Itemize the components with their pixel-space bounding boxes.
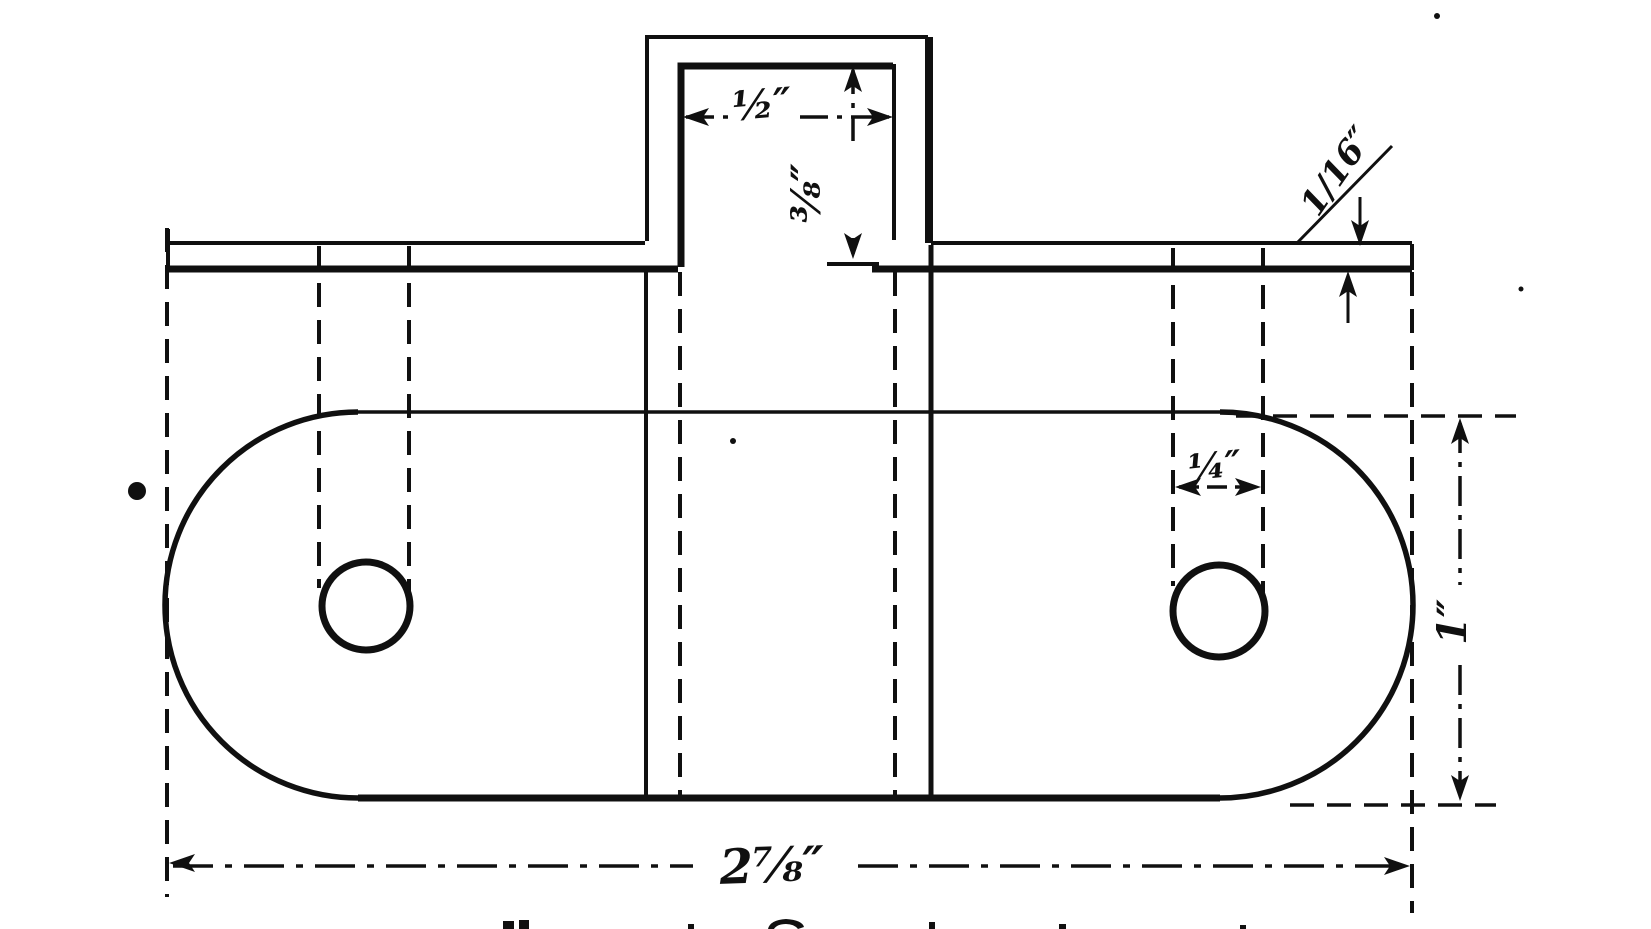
ink-speck [730, 438, 736, 444]
strip-elevation [165, 229, 1412, 270]
caption-fragment [519, 920, 529, 929]
left-hole [322, 562, 410, 650]
dim-label-tab-height: ⅜″ [783, 163, 830, 222]
dim-label-tab-width: ½″ [730, 79, 794, 131]
drawing-page: ½″ ⅜″ 1/16″ ¼″ 1″ 2⅞″ [0, 0, 1651, 929]
dim-label-overall-length: 2⅞″ [718, 836, 826, 896]
caption-fragment [503, 921, 514, 929]
blank-right-arc [1220, 412, 1413, 798]
caption-fragment [688, 924, 694, 929]
blank-plan-outline [165, 245, 1413, 798]
dim-label-slot-width: ¼″ [1186, 442, 1244, 489]
dimension-labels: ½″ ⅜″ 1/16″ ¼″ 1″ 2⅞″ [718, 79, 1476, 896]
ink-speck [1519, 287, 1524, 292]
extension-lines [167, 228, 1516, 913]
arrow-overall-left [169, 854, 195, 872]
scan-artifacts [128, 13, 1524, 929]
caption-fragment [929, 922, 935, 929]
tab-elevation [647, 37, 929, 267]
ink-spot [128, 482, 146, 500]
ink-speck [1434, 13, 1440, 19]
drawing-canvas: ½″ ⅜″ 1/16″ ¼″ 1″ 2⅞″ [0, 0, 1651, 929]
right-hole [1173, 565, 1265, 657]
caption-fragment [1059, 924, 1066, 929]
dim-label-plate-depth: 1″ [1429, 599, 1476, 645]
arrow-tab-height-down [844, 233, 862, 259]
blank-left-arc [165, 412, 358, 798]
caption-fragment [768, 919, 804, 929]
caption-fragment [1240, 925, 1246, 929]
